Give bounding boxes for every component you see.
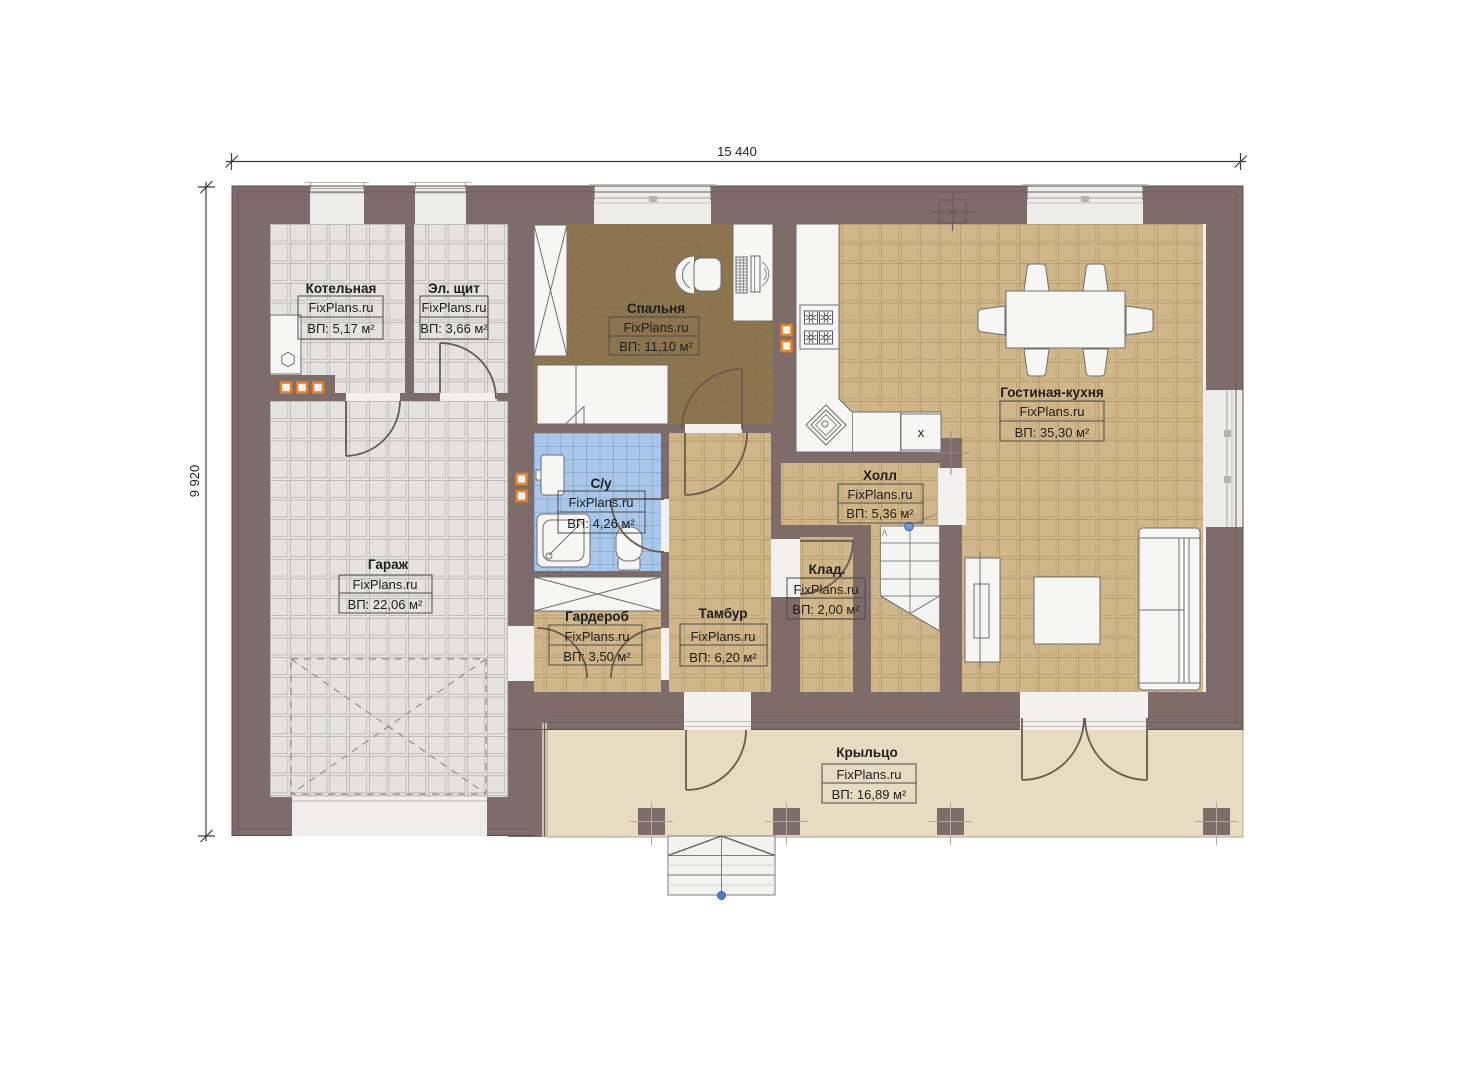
svg-text:ВП: 16,89 м²: ВП: 16,89 м² xyxy=(832,787,907,802)
svg-text:С/у: С/у xyxy=(590,476,612,491)
svg-text:FixPlans.ru: FixPlans.ru xyxy=(1019,404,1084,419)
svg-text:ВП: 6,20 м²: ВП: 6,20 м² xyxy=(689,650,757,665)
svg-text:ВП: 22,06 м²: ВП: 22,06 м² xyxy=(348,597,423,612)
svg-text:ВП: 5,17 м²: ВП: 5,17 м² xyxy=(307,321,375,336)
svg-text:Гостиная-кухня: Гостиная-кухня xyxy=(1000,385,1103,400)
svg-text:Эл. щит: Эл. щит xyxy=(428,281,480,296)
svg-text:FixPlans.ru: FixPlans.ru xyxy=(421,300,486,315)
svg-text:FixPlans.ru: FixPlans.ru xyxy=(690,629,755,644)
svg-text:FixPlans.ru: FixPlans.ru xyxy=(308,300,373,315)
svg-text:ВП: 5,36 м²: ВП: 5,36 м² xyxy=(846,506,914,521)
svg-text:Спальня: Спальня xyxy=(627,301,685,316)
svg-text:ВП: 3,50 м²: ВП: 3,50 м² xyxy=(563,649,631,664)
svg-text:x: x xyxy=(918,425,925,440)
svg-text:FixPlans.ru: FixPlans.ru xyxy=(836,767,901,782)
svg-text:Котельная: Котельная xyxy=(306,281,377,296)
svg-text:FixPlans.ru: FixPlans.ru xyxy=(793,582,858,597)
svg-text:FixPlans.ru: FixPlans.ru xyxy=(564,629,629,644)
svg-text:ВП: 11,10 м²: ВП: 11,10 м² xyxy=(619,339,693,354)
svg-text:Холл: Холл xyxy=(863,468,897,483)
svg-text:FixPlans.ru: FixPlans.ru xyxy=(847,487,912,502)
svg-text:FixPlans.ru: FixPlans.ru xyxy=(623,320,688,335)
svg-text:ВП: 35,30 м²: ВП: 35,30 м² xyxy=(1015,425,1090,440)
svg-text:Клад.: Клад. xyxy=(809,562,846,577)
svg-text:9 920: 9 920 xyxy=(187,465,202,498)
svg-text:ВП: 3,66 м²: ВП: 3,66 м² xyxy=(420,321,488,336)
svg-text:15 440: 15 440 xyxy=(717,144,757,159)
svg-text:Гардероб: Гардероб xyxy=(565,609,629,624)
svg-text:ВП: 4,26 м²: ВП: 4,26 м² xyxy=(567,516,635,531)
svg-text:FixPlans.ru: FixPlans.ru xyxy=(352,577,417,592)
svg-text:Гараж: Гараж xyxy=(368,557,409,572)
svg-text:Тамбур: Тамбур xyxy=(699,606,748,621)
svg-text:FixPlans.ru: FixPlans.ru xyxy=(568,495,633,510)
svg-text:Крыльцо: Крыльцо xyxy=(836,745,897,760)
svg-text:ВП: 2,00 м²: ВП: 2,00 м² xyxy=(792,602,860,617)
